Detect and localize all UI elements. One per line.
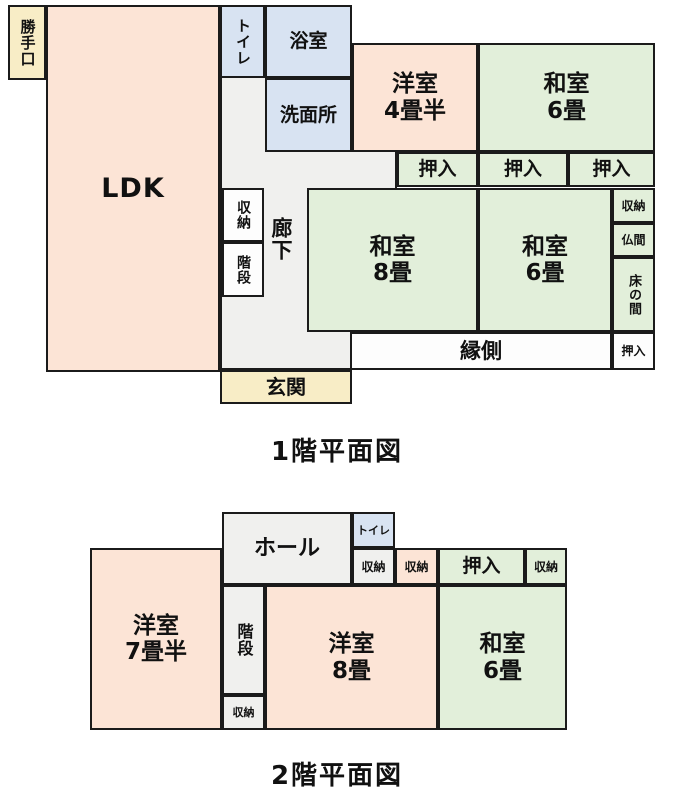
western-room-7-5-tatami-2f: 洋室 7畳半 (90, 548, 222, 730)
storage-c-2f: 収納 (525, 548, 567, 585)
washroom-1f: 洗面所 (265, 78, 352, 152)
japanese-room-6-tatami-2f: 和室 6畳 (438, 585, 567, 730)
engawa-veranda-1f: 縁側 (350, 332, 612, 370)
closet-oshiire-2-1f: 押入 (478, 152, 568, 187)
stairs-2f-label: 階段 (236, 623, 252, 657)
japanese-8-name: 和室 (370, 234, 416, 260)
western-7-5-size: 7畳半 (125, 639, 187, 665)
storage-b-label: 収納 (404, 561, 428, 573)
stair-storage-label: 収納 (236, 200, 250, 230)
toilet-2f-label: トイレ (357, 525, 390, 536)
ldk-room-1f: LDK (46, 5, 220, 372)
oshiire-2-label: 押入 (504, 160, 542, 179)
western-4-5-name: 洋室 (384, 71, 446, 97)
storage-c-label: 収納 (534, 561, 558, 573)
stair-storage-1f: 収納 (222, 188, 264, 242)
storage-right-label: 収納 (621, 200, 645, 212)
tokonoma-label: 床の間 (627, 274, 640, 316)
ldk-label: LDK (101, 175, 165, 202)
tokonoma-alcove-1f: 床の間 (612, 257, 655, 332)
butsuma-label: 仏間 (621, 234, 645, 246)
floor1-caption: 1階平面図 (0, 431, 674, 468)
storage-d-2f: 収納 (222, 695, 265, 730)
oshiire-3-label: 押入 (592, 160, 630, 179)
oshiire-2f-label: 押入 (462, 557, 500, 576)
hall-2f-label: ホール (254, 538, 320, 560)
storage-right-1f: 収納 (612, 188, 655, 223)
corridor-1f-label: 廊下 (270, 217, 291, 261)
bathroom-label: 浴室 (289, 32, 327, 51)
toilet-1f: トイレ (220, 5, 265, 78)
engawa-label: 縁側 (460, 341, 502, 362)
storage-a-label: 収納 (361, 561, 385, 573)
western-room-8-tatami-2f: 洋室 8畳 (265, 585, 438, 730)
western-8-size: 8畳 (329, 658, 375, 684)
japanese-6-ne-name: 和室 (544, 71, 590, 97)
japanese-6-center-size: 6畳 (522, 260, 568, 286)
washroom-label: 洗面所 (280, 106, 337, 125)
storage-a-2f: 収納 (352, 548, 395, 585)
genkan-entrance-1f: 玄関 (220, 370, 352, 404)
stairs-1f-label: 階段 (236, 255, 250, 285)
western-room-4-5-tatami-1f: 洋室 4畳半 (352, 43, 478, 152)
japanese-6-2f-name: 和室 (480, 631, 526, 657)
floor-plan-canvas: 廊下 勝手口 LDK トイレ 浴室 洗面所 洋室 4畳半 和室 6畳 押入 押入… (0, 0, 674, 800)
storage-b-2f: 収納 (395, 548, 438, 585)
japanese-room-6-tatami-ne-1f: 和室 6畳 (478, 43, 655, 152)
toilet-2f: トイレ (352, 512, 395, 548)
japanese-room-6-tatami-center-1f: 和室 6畳 (478, 188, 612, 332)
butsuma-altar-room-1f: 仏間 (612, 223, 655, 257)
closet-oshiire-1-1f: 押入 (397, 152, 478, 187)
japanese-room-8-tatami-1f: 和室 8畳 (307, 188, 478, 332)
japanese-6-center-name: 和室 (522, 234, 568, 260)
stairs-1f: 階段 (222, 242, 264, 297)
kitchen-door-label: 勝手口 (20, 19, 35, 67)
oshiire-4-label: 押入 (621, 345, 645, 357)
western-4-5-size: 4畳半 (384, 98, 446, 124)
closet-oshiire-3-1f: 押入 (568, 152, 655, 187)
bathroom-1f: 浴室 (265, 5, 352, 78)
genkan-label: 玄関 (266, 377, 306, 397)
japanese-6-2f-size: 6畳 (480, 658, 526, 684)
closet-oshiire-2f: 押入 (438, 548, 525, 585)
japanese-6-ne-size: 6畳 (544, 98, 590, 124)
kitchen-door-1f: 勝手口 (8, 5, 46, 80)
toilet-1f-label: トイレ (235, 18, 250, 66)
western-8-name: 洋室 (329, 631, 375, 657)
stairs-2f: 階段 (222, 585, 265, 695)
closet-oshiire-4-1f: 押入 (612, 332, 655, 370)
floor2-caption: 2階平面図 (0, 755, 674, 792)
japanese-8-size: 8畳 (370, 260, 416, 286)
storage-d-label: 収納 (233, 707, 255, 718)
oshiire-1-label: 押入 (418, 160, 456, 179)
hall-2f: ホール (222, 512, 352, 585)
western-7-5-name: 洋室 (125, 613, 187, 639)
